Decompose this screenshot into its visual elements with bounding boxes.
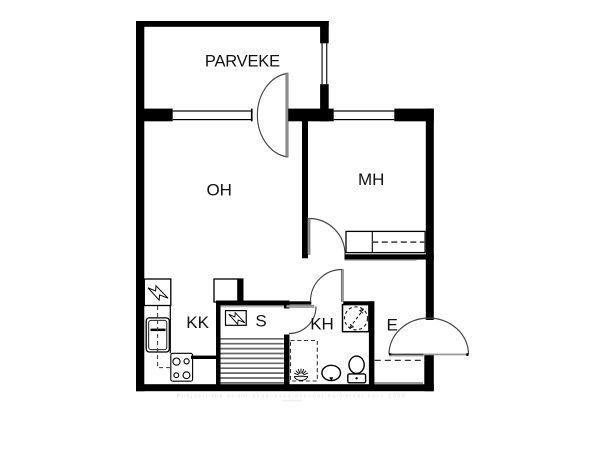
svg-text:MH: MH [358, 170, 384, 189]
svg-text:KH: KH [310, 314, 334, 333]
svg-text:KK: KK [186, 313, 209, 332]
svg-text:S: S [255, 312, 266, 331]
svg-text:E: E [387, 316, 398, 335]
svg-text:PARVEKE: PARVEKE [205, 52, 280, 70]
svg-text:OH: OH [206, 181, 232, 200]
